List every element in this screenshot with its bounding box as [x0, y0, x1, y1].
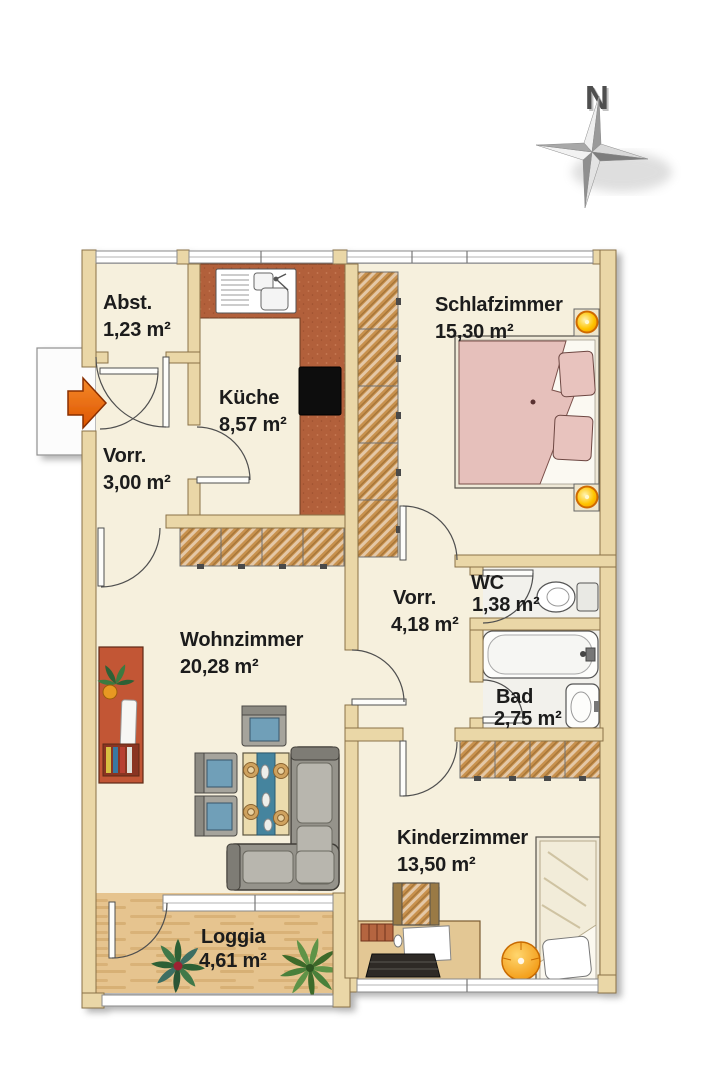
window-abstellraum — [96, 251, 177, 263]
label-schlafzimmer: Schlafzimmer — [435, 294, 563, 316]
floorplan-drawing: N N — [0, 0, 716, 1080]
label-loggia: Loggia — [201, 926, 266, 948]
area-schlafzimmer: 15,30 m² — [435, 321, 514, 343]
room-wc — [537, 582, 598, 612]
window-wohnzimmer-loggia — [163, 895, 333, 911]
label-flur: Vorr. — [393, 587, 436, 609]
dining-chair-icon — [195, 753, 237, 793]
dining-table-icon — [243, 753, 289, 835]
label-kueche: Küche — [219, 387, 279, 409]
window-kinderzimmer — [357, 979, 598, 992]
area-flur: 4,18 m² — [391, 614, 459, 636]
label-wc: WC — [471, 572, 504, 594]
loggia-railing — [102, 995, 333, 1006]
bedside-lamp-icon — [577, 487, 598, 508]
kids-wardrobe-icon — [460, 741, 600, 781]
compass-rose-icon: N N — [536, 79, 672, 208]
label-kinderzimmer: Kinderzimmer — [397, 827, 528, 849]
area-kinderzimmer: 13,50 m² — [397, 854, 476, 876]
area-vorraum: 3,00 m² — [103, 472, 171, 494]
floor-lamp-icon — [502, 942, 540, 980]
label-bad: Bad — [496, 686, 533, 708]
label-vorraum: Vorr. — [103, 445, 146, 467]
window-schlafzimmer — [347, 251, 593, 263]
kitchen-sink-icon — [216, 269, 296, 313]
cooktop-icon — [299, 367, 341, 415]
double-bed-icon — [455, 336, 599, 488]
washbasin-icon — [566, 684, 599, 728]
area-wc: 1,38 m² — [472, 594, 540, 616]
desk-chair-icon — [393, 883, 439, 925]
sideboard-icon — [97, 647, 143, 783]
dining-chair-icon — [195, 796, 237, 836]
area-bad: 2,75 m² — [494, 708, 562, 730]
floorplan-page: N N — [0, 0, 716, 1080]
bathtub-icon — [483, 631, 598, 678]
desk-icon — [357, 921, 480, 981]
area-loggia: 4,61 m² — [199, 950, 267, 972]
area-wohnzimmer: 20,28 m² — [180, 656, 259, 678]
single-bed-icon — [536, 837, 600, 983]
dining-chair-icon — [242, 706, 286, 746]
hall-wardrobe-icon — [180, 528, 344, 569]
toilet-icon — [537, 582, 598, 612]
bedroom-wardrobe-icon — [358, 272, 401, 557]
area-abstellraum: 1,23 m² — [103, 319, 171, 341]
window-kueche — [189, 251, 333, 263]
label-abstellraum: Abst. — [103, 292, 152, 314]
label-wohnzimmer: Wohnzimmer — [180, 629, 304, 651]
bedside-lamp-icon — [577, 312, 598, 333]
area-kueche: 8,57 m² — [219, 414, 287, 436]
